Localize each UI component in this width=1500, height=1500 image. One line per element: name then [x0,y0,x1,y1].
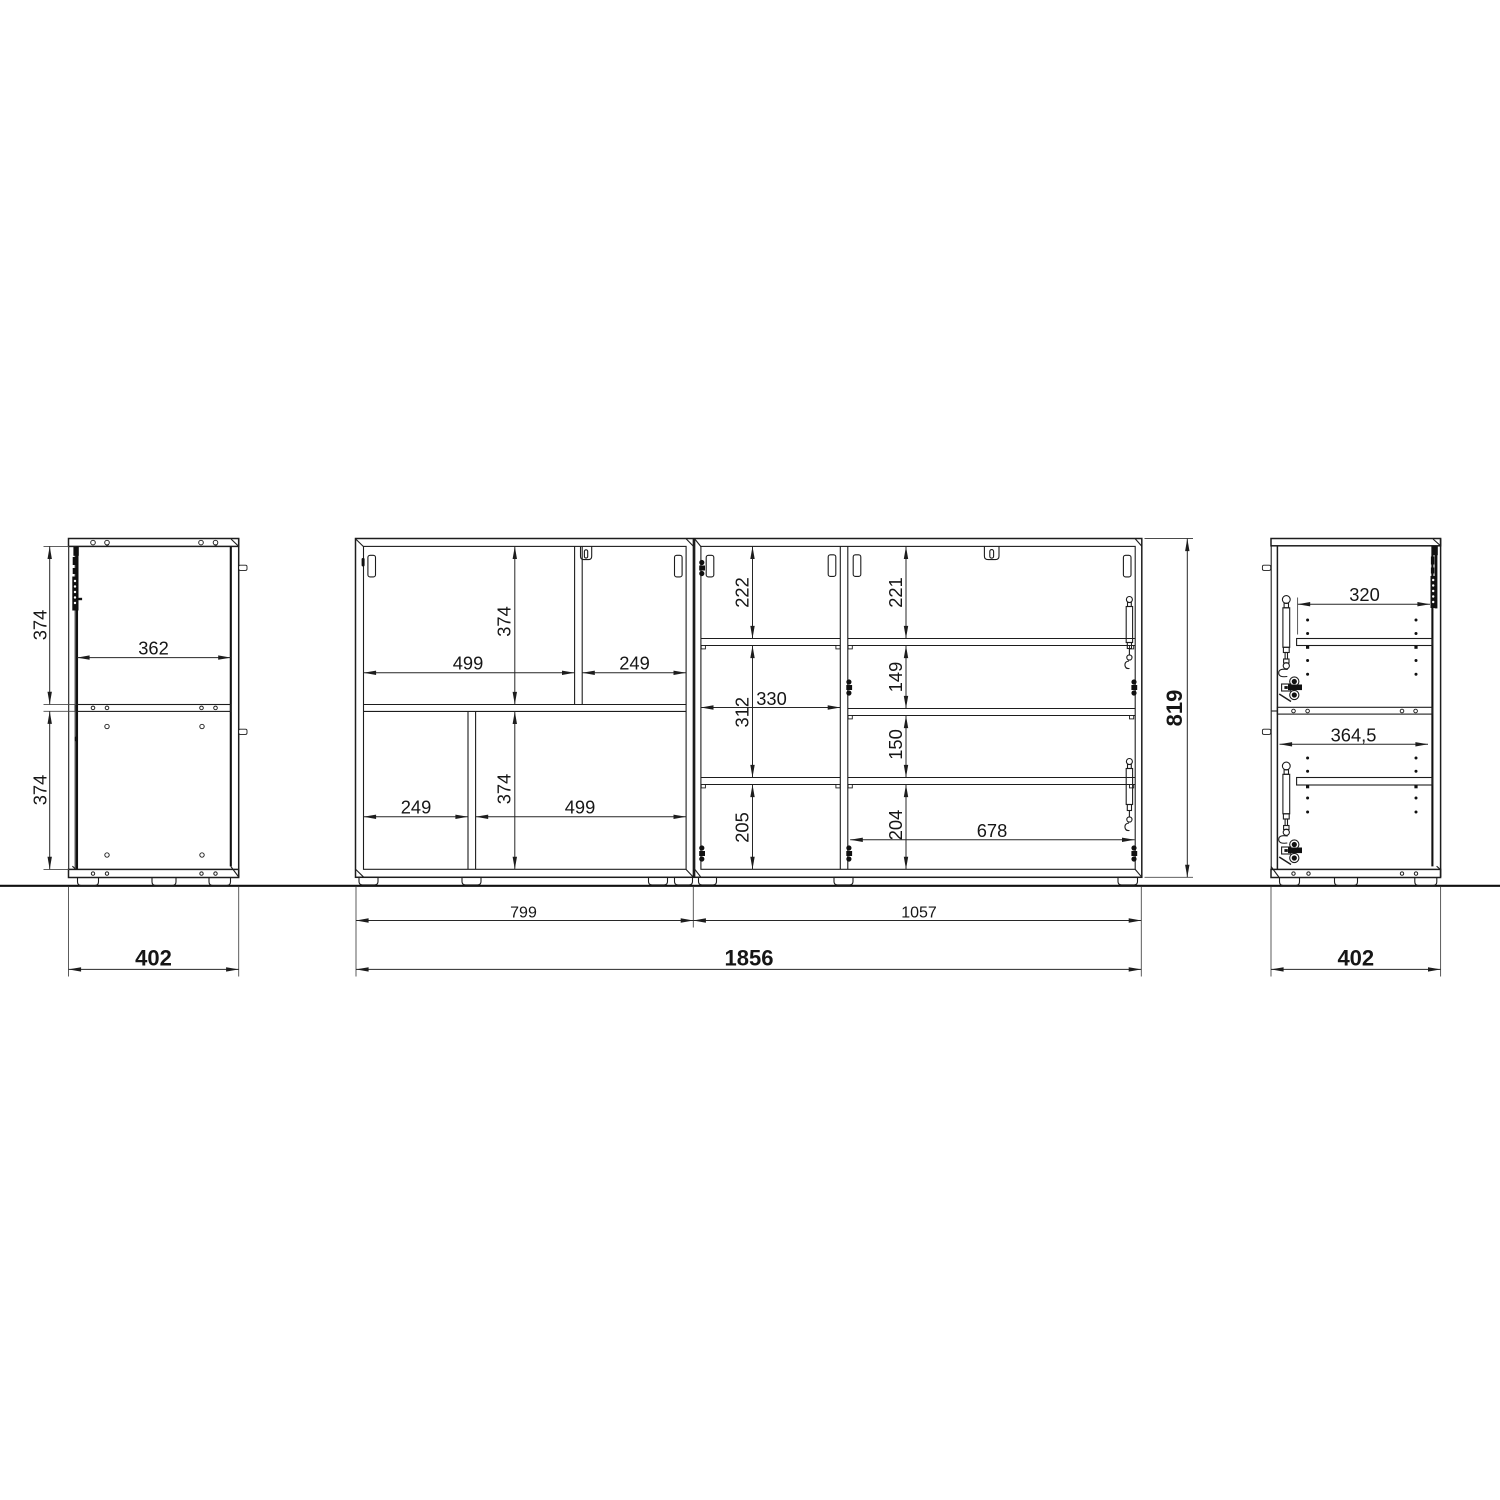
svg-text:362: 362 [138,638,169,659]
svg-text:1856: 1856 [725,946,774,971]
svg-text:249: 249 [619,653,650,674]
svg-text:330: 330 [756,688,787,709]
svg-text:374: 374 [493,606,514,637]
svg-text:1057: 1057 [901,904,937,921]
svg-text:312: 312 [731,697,752,728]
svg-text:249: 249 [401,797,432,818]
svg-text:204: 204 [885,810,906,841]
svg-text:150: 150 [885,729,906,760]
svg-text:799: 799 [510,904,537,921]
svg-text:374: 374 [29,610,50,641]
svg-text:149: 149 [885,662,906,693]
svg-text:374: 374 [493,774,514,805]
svg-text:222: 222 [731,577,752,608]
svg-text:221: 221 [885,577,906,608]
svg-text:819: 819 [1162,690,1187,727]
svg-text:364,5: 364,5 [1331,725,1377,746]
svg-text:320: 320 [1349,584,1380,605]
svg-text:499: 499 [565,797,596,818]
svg-text:499: 499 [453,653,484,674]
svg-text:374: 374 [29,775,50,806]
svg-text:205: 205 [731,812,752,843]
svg-text:402: 402 [135,946,172,971]
svg-text:402: 402 [1337,946,1374,971]
svg-text:678: 678 [977,820,1008,841]
